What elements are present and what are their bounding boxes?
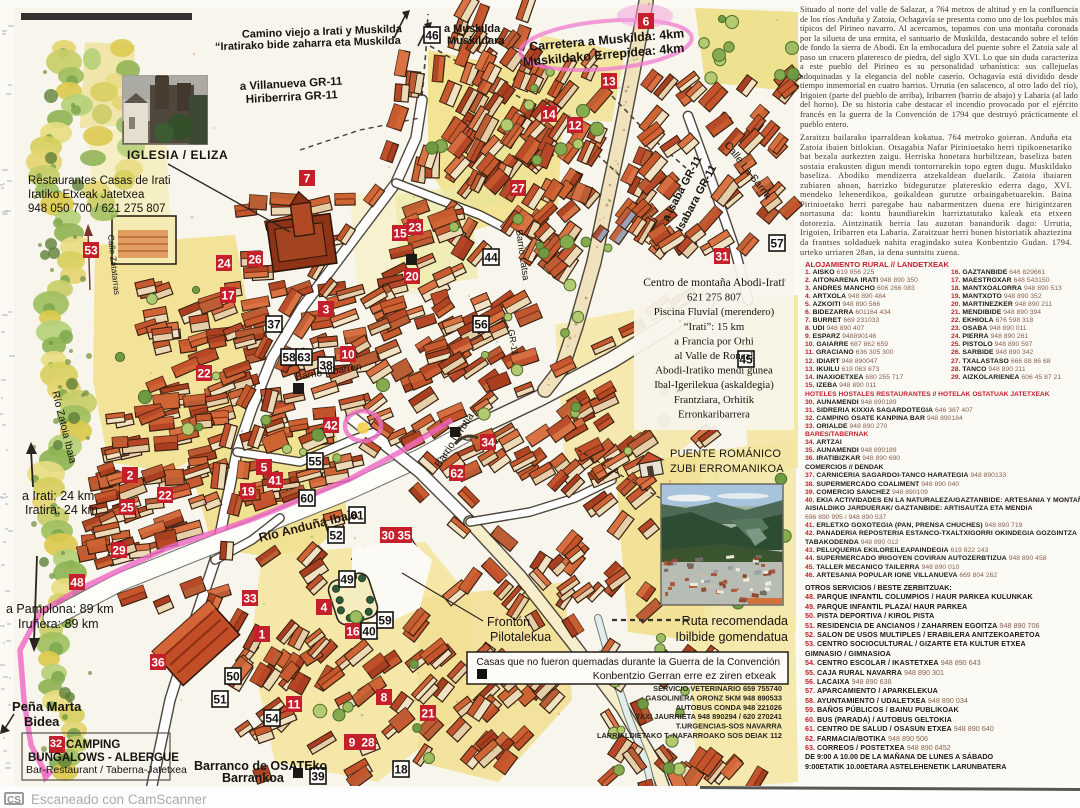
svg-text:13: 13: [602, 75, 616, 89]
svg-text:948 050 700 / 621 275 807: 948 050 700 / 621 275 807: [28, 203, 166, 215]
svg-text:Ibal-Igerilekua (askaldegia): Ibal-Igerilekua (askaldegia): [654, 379, 774, 391]
svg-text:T.URGENCIAS-SOS NAVARRA: T.URGENCIAS-SOS NAVARRA: [676, 722, 783, 731]
svg-text:23: 23: [408, 221, 422, 235]
svg-text:44: 44: [484, 251, 498, 265]
svg-text:12: 12: [568, 119, 582, 133]
svg-text:22: 22: [197, 367, 211, 381]
svg-text:Bidea: Bidea: [24, 714, 60, 729]
svg-text:51: 51: [213, 693, 227, 707]
svg-text:28: 28: [361, 736, 375, 750]
svg-text:Erronkaribarrera: Erronkaribarrera: [678, 408, 750, 420]
svg-text:41: 41: [268, 474, 282, 488]
svg-text:ZUBI ERROMANIKOA: ZUBI ERROMANIKOA: [670, 463, 784, 475]
svg-text:a Muskilda: a Muskilda: [444, 23, 501, 35]
svg-text:62: 62: [450, 467, 464, 481]
svg-text:“Irati”: 15 km: “Irati”: 15 km: [684, 321, 745, 333]
svg-text:17: 17: [221, 289, 235, 303]
svg-text:Peña Marta: Peña Marta: [12, 699, 82, 714]
svg-text:55: 55: [308, 455, 322, 469]
svg-text:Casas que no fueron quemadas d: Casas que no fueron quemadas durante la …: [476, 657, 780, 668]
svg-text:29: 29: [112, 544, 126, 558]
svg-text:2: 2: [127, 469, 134, 483]
svg-text:SERVICIO VETERINARIO 659 75574: SERVICIO VETERINARIO 659 755740: [653, 684, 782, 693]
svg-text:Frantziara, Orhitik: Frantziara, Orhitik: [674, 394, 755, 406]
svg-text:LARRIALDIETAKO T.-NAFARROAKO S: LARRIALDIETAKO T.-NAFARROAKO SOS DEIAK 1…: [597, 731, 782, 740]
svg-text:IGLESIA / ELIZA: IGLESIA / ELIZA: [127, 148, 228, 162]
svg-text:AUTOBUS CONDA 948 221026: AUTOBUS CONDA 948 221026: [676, 703, 782, 712]
svg-text:a Pamplona: 89 km: a Pamplona: 89 km: [6, 602, 114, 616]
svg-text:20: 20: [405, 270, 419, 284]
svg-text:22: 22: [158, 489, 172, 503]
svg-text:8: 8: [381, 691, 388, 705]
svg-text:46: 46: [425, 29, 439, 43]
svg-text:54: 54: [265, 712, 279, 726]
svg-text:19: 19: [241, 485, 255, 499]
svg-text:Iratiko Etxeak Jatetxea: Iratiko Etxeak Jatetxea: [28, 189, 145, 201]
svg-text:16: 16: [346, 625, 360, 639]
svg-text:15: 15: [393, 227, 407, 241]
svg-text:26: 26: [248, 253, 262, 267]
svg-text:GASOLINERA ORONZ 5KM 948 89053: GASOLINERA ORONZ 5KM 948 890533: [646, 693, 783, 702]
svg-text:Bar-Restaurant / Taberna-Jatet: Bar-Restaurant / Taberna-Jatetxea: [26, 764, 187, 776]
svg-text:Iruñera: 89 km: Iruñera: 89 km: [18, 617, 99, 631]
svg-text:Iratira: 24 km: Iratira: 24 km: [25, 503, 98, 517]
svg-text:14: 14: [542, 108, 556, 122]
svg-text:56: 56: [474, 318, 488, 332]
svg-text:31: 31: [715, 250, 729, 264]
svg-text:25: 25: [120, 501, 134, 515]
svg-text:a Francia por Orhi: a Francia por Orhi: [674, 335, 753, 347]
svg-text:58: 58: [282, 351, 296, 365]
svg-text:27: 27: [511, 182, 525, 196]
svg-text:57: 57: [770, 237, 784, 251]
svg-text:3: 3: [323, 303, 330, 317]
svg-text:Ruta recomendada: Ruta recomendada: [682, 614, 788, 628]
svg-text:48: 48: [70, 576, 84, 590]
svg-text:11: 11: [288, 698, 301, 712]
svg-text:6: 6: [643, 15, 650, 29]
svg-text:18: 18: [394, 763, 408, 777]
svg-text:7: 7: [304, 172, 311, 186]
svg-text:52: 52: [329, 529, 343, 543]
svg-text:30: 30: [381, 529, 395, 543]
svg-text:24: 24: [217, 257, 231, 271]
svg-text:Muskildara: Muskildara: [447, 35, 505, 47]
svg-text:63: 63: [297, 351, 311, 365]
svg-text:50: 50: [226, 670, 240, 684]
svg-text:Centro de montaña Abodi-Irati: Centro de montaña Abodi-Irati: [643, 277, 784, 289]
svg-text:37: 37: [267, 318, 281, 332]
svg-text:9: 9: [349, 736, 356, 750]
svg-text:TAXI JAURRIETA 948 890294 / 62: TAXI JAURRIETA 948 890294 / 620 270241: [636, 712, 782, 721]
svg-text:Frontón: Frontón: [487, 615, 530, 629]
svg-text:33: 33: [243, 592, 257, 606]
svg-text:36: 36: [151, 656, 165, 670]
svg-text:35: 35: [397, 529, 411, 543]
svg-text:CAMPING: CAMPING: [66, 739, 120, 751]
svg-text:a Irati: 24 km: a Irati: 24 km: [22, 489, 94, 503]
svg-text:1: 1: [259, 628, 266, 642]
svg-text:21: 21: [421, 707, 435, 721]
svg-text:59: 59: [378, 614, 392, 628]
svg-text:Piscina Fluvial (merendero): Piscina Fluvial (merendero): [654, 306, 775, 318]
svg-text:40: 40: [362, 625, 376, 639]
svg-text:32: 32: [50, 738, 62, 750]
svg-text:49: 49: [340, 573, 354, 587]
svg-text:4: 4: [321, 601, 328, 615]
svg-text:al Valle de Roncal: al Valle de Roncal: [675, 350, 754, 362]
svg-text:42: 42: [324, 419, 338, 433]
svg-text:5: 5: [261, 461, 268, 475]
svg-text:621 275 807: 621 275 807: [687, 292, 742, 304]
svg-text:60: 60: [300, 492, 314, 506]
svg-text:Ibilbide gomendatua: Ibilbide gomendatua: [675, 630, 788, 644]
svg-text:BUNGALOWS - ALBERGUE: BUNGALOWS - ALBERGUE: [28, 752, 179, 764]
svg-text:53: 53: [84, 244, 98, 258]
svg-text:Barrankoa: Barrankoa: [222, 771, 285, 785]
svg-text:10: 10: [341, 348, 355, 362]
svg-text:34: 34: [481, 436, 495, 450]
svg-text:Konbentzio Gerran erre ez zire: Konbentzio Gerran erre ez ziren etxeak: [593, 670, 777, 682]
svg-text:PUENTE ROMÁNICO: PUENTE ROMÁNICO: [670, 447, 781, 460]
svg-text:Restaurantes Casas de Irati: Restaurantes Casas de Irati: [28, 175, 171, 187]
svg-text:Abodi-Iratiko mendi gunea: Abodi-Iratiko mendi gunea: [655, 365, 773, 377]
svg-text:Pilotalekua: Pilotalekua: [490, 630, 551, 644]
